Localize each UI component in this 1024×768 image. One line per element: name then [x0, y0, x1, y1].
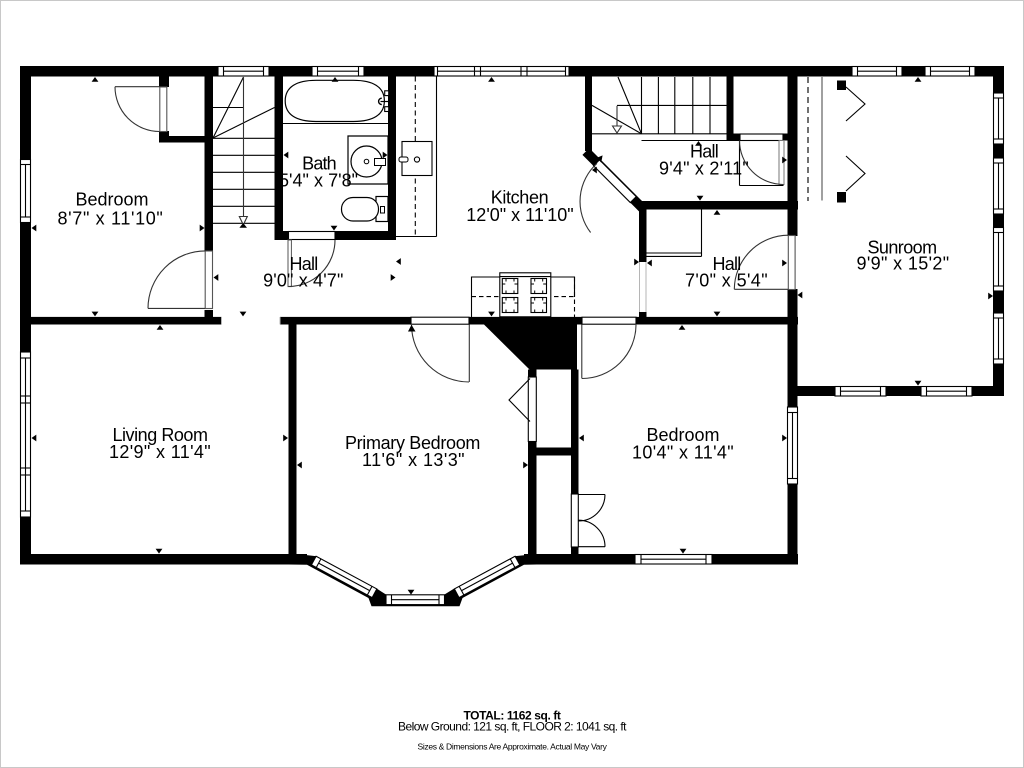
svg-text:10'4" x 11'4": 10'4" x 11'4" [632, 443, 734, 463]
svg-text:5'4" x 7'8": 5'4" x 7'8" [279, 171, 358, 191]
svg-text:9'9" x 15'2": 9'9" x 15'2" [856, 254, 949, 274]
svg-text:7'0" x 5'4": 7'0" x 5'4" [685, 271, 768, 291]
svg-text:12'9" x 11'4": 12'9" x 11'4" [109, 442, 211, 462]
svg-text:9'4" x 2'11": 9'4" x 2'11" [659, 159, 749, 179]
svg-text:11'6" x 13'3": 11'6" x 13'3" [362, 450, 465, 470]
svg-text:8'7" x 11'10": 8'7" x 11'10" [58, 209, 164, 229]
svg-text:Below Ground: 121 sq. ft, FLOO: Below Ground: 121 sq. ft, FLOOR 2: 1041 … [398, 720, 627, 734]
svg-text:Bedroom: Bedroom [75, 190, 148, 210]
svg-text:12'0" x 11'10": 12'0" x 11'10" [466, 205, 573, 225]
svg-text:9'0" x 4'7": 9'0" x 4'7" [263, 271, 343, 291]
svg-text:Sizes & Dimensions Are Approxi: Sizes & Dimensions Are Approximate. Actu… [418, 742, 608, 752]
